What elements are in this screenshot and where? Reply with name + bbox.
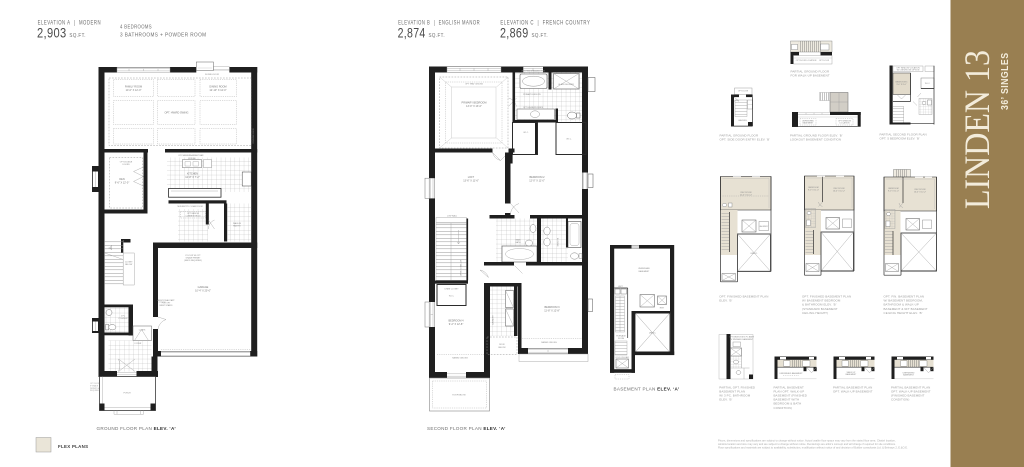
svg-text:ENSUITE: ENSUITE <box>558 237 560 246</box>
svg-text:BELOW: BELOW <box>125 264 132 266</box>
svg-text:window location and size may v: window location and size may vary and ar… <box>718 442 896 446</box>
svg-text:HWT: HWT <box>660 308 665 310</box>
svg-text:3 BATHROOMS + POWDER ROOM: 3 BATHROOMS + POWDER ROOM <box>120 32 207 38</box>
svg-text:REQUIRED: REQUIRED <box>90 390 100 392</box>
svg-text:11'-8" X 12'-8": 11'-8" X 12'-8" <box>544 310 560 313</box>
svg-text:COATS: COATS <box>139 329 146 332</box>
svg-text:4 BEDROOMS: 4 BEDROOMS <box>120 24 152 30</box>
svg-text:LAUNDRY: LAUNDRY <box>759 225 769 228</box>
svg-text:DOORS: DOORS <box>122 164 130 166</box>
svg-text:9'-0" X 11'-0": 9'-0" X 11'-0" <box>888 190 899 192</box>
svg-text:W.I.C.: W.I.C. <box>449 296 455 298</box>
svg-text:UNEXC.: UNEXC. <box>649 333 657 335</box>
svg-text:OPT DOOR: OPT DOOR <box>819 60 830 62</box>
svg-text:OPT. 5 BEDROOM ELEV. ‘B’: OPT. 5 BEDROOM ELEV. ‘B’ <box>880 137 921 141</box>
svg-text:COLD CELLAR: COLD CELLAR <box>615 356 629 359</box>
svg-text:2,869: 2,869 <box>500 25 529 40</box>
svg-text:CONDITION): CONDITION) <box>774 406 792 410</box>
svg-text:KITCHEN/BREAKFAST BAR: KITCHEN/BREAKFAST BAR <box>179 154 205 157</box>
svg-text:CONDITION): CONDITION) <box>891 398 909 402</box>
svg-text:MAIN: MAIN <box>516 239 521 242</box>
svg-text:UNFINISHED BASEMENT: UNFINISHED BASEMENT <box>779 372 803 375</box>
svg-text:ROOM: ROOM <box>618 338 624 340</box>
svg-text:MUD/ENTRY CLOAK ROOM: MUD/ENTRY CLOAK ROOM <box>177 205 203 208</box>
svg-text:ROOF BELOW: ROOF BELOW <box>452 395 465 397</box>
svg-text:PRIMARY ENSUITE: PRIMARY ENSUITE <box>523 93 541 96</box>
svg-text:CUBBIES REQ'D: CUBBIES REQ'D <box>185 216 201 218</box>
svg-text:10'-4" X 20'-0": 10'-4" X 20'-0" <box>195 290 211 293</box>
svg-text:PORCH: PORCH <box>124 393 132 395</box>
svg-text:LANDING: LANDING <box>738 119 747 122</box>
svg-text:OPT. HW/RD SWING: OPT. HW/RD SWING <box>165 112 189 115</box>
svg-text:OPT. SIDE DOOR ENTRY ELEV. ‘B’: OPT. SIDE DOOR ENTRY ELEV. ‘B’ <box>720 138 771 142</box>
svg-text:(SEE'D REQUIRED): (SEE'D REQUIRED) <box>184 260 202 262</box>
svg-text:BEDROOM 4: BEDROOM 4 <box>448 320 464 323</box>
svg-text:Floor specifications and mater: Floor specifications and materials are s… <box>718 445 908 449</box>
svg-text:DEN: DEN <box>119 178 124 181</box>
svg-text:22'-4" X 12'-2": 22'-4" X 12'-2" <box>740 195 753 197</box>
svg-text:16'-4" X 12'-2": 16'-4" X 12'-2" <box>833 190 846 192</box>
svg-text:12'-10" X 12'-0": 12'-10" X 12'-0" <box>209 89 226 92</box>
svg-text:RAISED CEILING: RAISED CEILING <box>452 357 468 360</box>
svg-text:SECOND FLOOR PLAN ELEV. ‘A’: SECOND FLOOR PLAN ELEV. ‘A’ <box>427 426 506 431</box>
svg-text:BASEMENT: BASEMENT <box>639 270 650 273</box>
svg-text:OPEN TO BELOW: OPEN TO BELOW <box>461 260 463 276</box>
svg-text:BASEMENT: BASEMENT <box>803 122 814 125</box>
svg-text:12'-8" X 7'-2": 12'-8" X 7'-2" <box>185 176 200 179</box>
svg-text:ADDITIONAL PART: ADDITIONAL PART <box>157 299 175 302</box>
svg-text:LINDEN 13: LINDEN 13 <box>957 50 997 209</box>
svg-text:13'-6" X 11'-6": 13'-6" X 11'-6" <box>463 180 479 183</box>
svg-text:ELEV. ‘B’: ELEV. ‘B’ <box>719 299 732 303</box>
svg-text:FOYER: FOYER <box>135 343 142 345</box>
svg-text:36’ SINGLES: 36’ SINGLES <box>1000 53 1011 111</box>
svg-text:OPT TRAY CEILING: OPT TRAY CEILING <box>465 83 483 86</box>
svg-text:12'-0" X 11'-0": 12'-0" X 11'-0" <box>529 180 545 183</box>
svg-text:LOOKOUT BASEMENT CONDITION: LOOKOUT BASEMENT CONDITION <box>790 138 841 142</box>
svg-text:GRADE PERMIT: GRADE PERMIT <box>186 257 202 260</box>
svg-text:2,874: 2,874 <box>398 25 426 40</box>
svg-text:2,903: 2,903 <box>37 25 67 40</box>
svg-text:BSMT STAIRS: BSMT STAIRS <box>160 304 173 307</box>
svg-text:9'-0" X 9'-0": 9'-0" X 9'-0" <box>896 84 906 86</box>
svg-text:FURNACE: FURNACE <box>616 335 626 338</box>
svg-text:W.I.C.: W.I.C. <box>925 83 931 85</box>
svg-text:FOR WALK-UP BASEMENT: FOR WALK-UP BASEMENT <box>791 73 830 77</box>
svg-text:LOFT: LOFT <box>468 176 475 179</box>
svg-text:W.I.C.: W.I.C. <box>566 139 572 141</box>
svg-text:WALK-IN: WALK-IN <box>233 222 242 225</box>
svg-text:W/ 5 BEDROOM OPTION: W/ 5 BEDROOM OPTION <box>897 70 920 72</box>
svg-text:14'-0" X 12'-0": 14'-0" X 12'-0" <box>126 89 142 92</box>
svg-text:SLIDING DOOR: SLIDING DOOR <box>205 74 220 76</box>
svg-text:16'-4" X 12'-2": 16'-4" X 12'-2" <box>914 191 927 193</box>
svg-text:BEDROOM 2: BEDROOM 2 <box>529 176 545 179</box>
svg-text:CEILING HEIGHT ELEV. ‘B’: CEILING HEIGHT ELEV. ‘B’ <box>884 311 923 315</box>
svg-text:ROOF: ROOF <box>499 344 505 346</box>
svg-text:BASEMENT: BASEMENT <box>903 374 914 377</box>
svg-text:Prices, dimensions and specifi: Prices, dimensions and specifications ar… <box>718 438 896 442</box>
svg-text:OPT DOOR: OPT DOOR <box>738 91 749 93</box>
svg-text:LINEN CLOSET: LINEN CLOSET <box>445 289 460 291</box>
svg-text:ELEV. ‘B’: ELEV. ‘B’ <box>719 398 732 402</box>
svg-text:LOW WALL: LOW WALL <box>447 215 458 218</box>
svg-text:CEILING HEIGHT): CEILING HEIGHT) <box>802 311 828 315</box>
svg-text:GROUND FLOOR PLAN ELEV. ‘A’: GROUND FLOOR PLAN ELEV. ‘A’ <box>97 426 176 431</box>
svg-text:9'-0" X 11'-0": 9'-0" X 11'-0" <box>808 189 819 191</box>
svg-text:COVERED DECK: COVERED DECK <box>253 128 255 144</box>
svg-text:PANTRY: PANTRY <box>233 225 241 228</box>
svg-text:OPT. WALK-UP BASEMENT: OPT. WALK-UP BASEMENT <box>833 389 873 393</box>
svg-text:GARAGE: GARAGE <box>198 286 209 289</box>
svg-text:BASEMENT: BASEMENT <box>846 373 857 376</box>
svg-text:GLASS SHOWER: GLASS SHOWER <box>558 83 574 86</box>
svg-text:9'-6" X 12'-0": 9'-6" X 12'-0" <box>115 182 130 185</box>
svg-text:BEDROOM 3: BEDROOM 3 <box>544 306 560 309</box>
svg-text:SQ.FT.: SQ.FT. <box>69 33 86 39</box>
svg-text:BASEMENT PLAN ELEV. ‘A’: BASEMENT PLAN ELEV. ‘A’ <box>614 387 680 392</box>
svg-text:9'-2" X 12'-8": 9'-2" X 12'-8" <box>449 323 464 326</box>
svg-text:OPT FREESTANDING TUB: OPT FREESTANDING TUB <box>521 70 546 73</box>
svg-text:PRIMARY BEDROOM: PRIMARY BEDROOM <box>462 102 487 105</box>
svg-text:13'-0" X 13'-0": 13'-0" X 13'-0" <box>466 105 482 108</box>
svg-text:POWDER: POWDER <box>119 318 128 320</box>
svg-text:OPT HIS/HERS SINKS: OPT HIS/HERS SINKS <box>523 107 544 109</box>
svg-text:UNEXC.: UNEXC. <box>750 253 758 255</box>
svg-text:W/ FINISHED BASEMENT: W/ FINISHED BASEMENT <box>730 338 754 341</box>
svg-text:BELOW: BELOW <box>499 347 506 349</box>
svg-text:SQ.FT.: SQ.FT. <box>532 33 549 39</box>
svg-text:LOCATION: LOCATION <box>840 122 850 125</box>
svg-text:OPT DOOR LOCATION: OPT DOOR LOCATION <box>796 59 817 62</box>
svg-text:W.I.C.: W.I.C. <box>523 132 529 134</box>
svg-text:FLEX PLANS: FLEX PLANS <box>58 444 88 449</box>
svg-text:BATH: BATH <box>515 241 521 244</box>
svg-text:RAISED CEILING: RAISED CEILING <box>541 341 557 344</box>
svg-text:SQ.FT.: SQ.FT. <box>429 33 446 39</box>
svg-text:LAUNDRY: LAUNDRY <box>492 315 495 325</box>
svg-text:FRIDGE: FRIDGE <box>188 158 196 160</box>
svg-text:UNFINISHED: UNFINISHED <box>638 268 650 270</box>
